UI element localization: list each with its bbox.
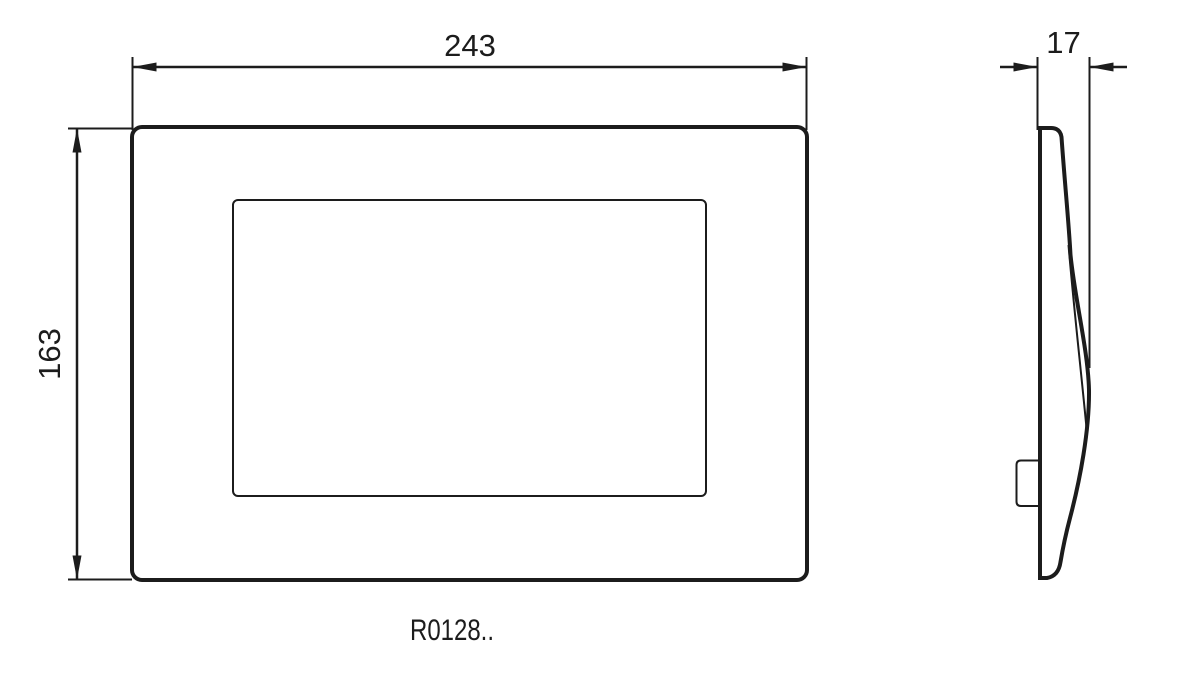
height-dimension-value: 163 [32, 328, 67, 380]
height-dimension: 163 [32, 129, 132, 580]
arrowhead-top-icon [73, 129, 82, 153]
drawing-sheet: 243 163 17 R0128.. [0, 0, 1177, 673]
plate-inner-panel [233, 200, 706, 496]
width-dimension-value: 243 [444, 28, 496, 63]
depth-dimension-value: 17 [1046, 25, 1080, 60]
mounting-clip [1017, 461, 1041, 507]
side-profile-outline [1040, 128, 1089, 578]
arrowhead-left-icon [133, 63, 157, 72]
side-view [1017, 128, 1090, 578]
product-code-label: R0128.. [410, 614, 494, 647]
depth-dimension: 17 [1000, 25, 1127, 368]
front-view [132, 127, 807, 580]
width-dimension: 243 [133, 28, 807, 130]
arrowhead-bottom-icon [73, 556, 82, 580]
arrowhead-right-icon [783, 63, 807, 72]
arrowhead-right-icon [1090, 63, 1114, 72]
arrowhead-left-icon [1014, 63, 1038, 72]
technical-drawing: 243 163 17 R0128.. [0, 0, 1177, 673]
